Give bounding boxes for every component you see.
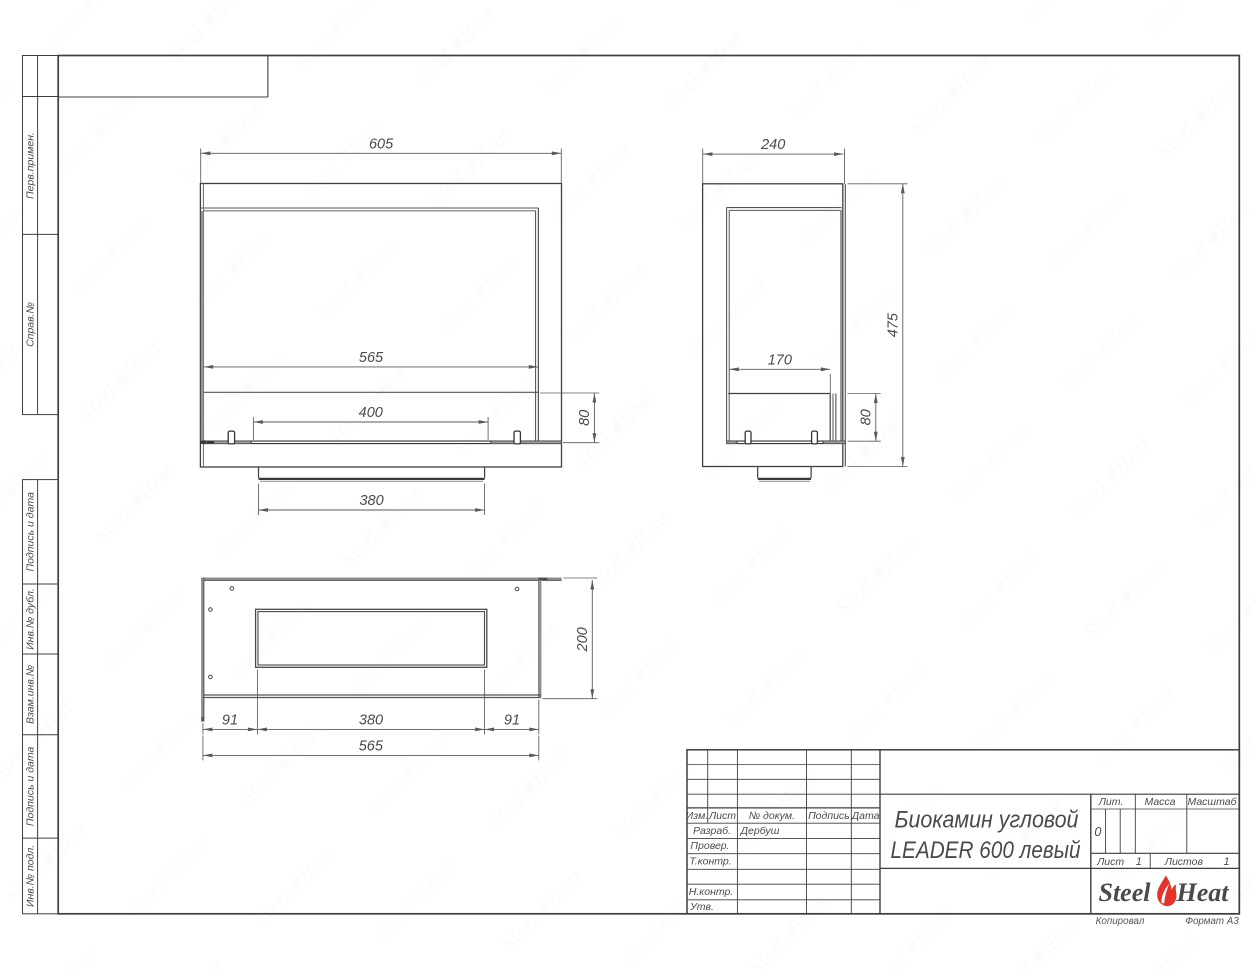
svg-text:Т.контр.: Т.контр.	[689, 855, 731, 867]
svg-text:0: 0	[1094, 825, 1101, 839]
svg-text:LEADER 600 левый: LEADER 600 левый	[891, 837, 1081, 864]
svg-text:1: 1	[1136, 856, 1142, 868]
svg-text:Взам.инв.№: Взам.инв.№	[25, 665, 37, 724]
svg-text:Инв.№ дубл.: Инв.№ дубл.	[25, 588, 37, 650]
svg-text:Биокамин угловой: Биокамин угловой	[895, 807, 1079, 834]
svg-text:605: 605	[369, 136, 394, 152]
svg-text:Лит.: Лит.	[1098, 796, 1124, 808]
svg-text:Лист: Лист	[708, 810, 736, 822]
svg-text:Дата: Дата	[851, 810, 880, 822]
svg-text:91: 91	[504, 712, 520, 728]
svg-text:Копировал: Копировал	[1096, 916, 1145, 927]
svg-text:Масштаб: Масштаб	[1187, 796, 1237, 808]
svg-text:565: 565	[359, 738, 384, 754]
svg-text:Дербуш: Дербуш	[740, 825, 780, 837]
svg-text:380: 380	[359, 493, 383, 509]
svg-text:400: 400	[359, 405, 383, 421]
svg-text:200: 200	[575, 627, 591, 652]
svg-text:1: 1	[1223, 856, 1229, 868]
svg-text:91: 91	[222, 712, 238, 728]
svg-text:Heat: Heat	[1176, 878, 1230, 907]
svg-text:Разраб.: Разраб.	[693, 825, 731, 837]
svg-text:Листов: Листов	[1164, 856, 1204, 868]
svg-text:Провер.: Провер.	[690, 840, 729, 852]
svg-text:№ докум.: № докум.	[749, 810, 795, 822]
svg-text:380: 380	[359, 712, 383, 728]
svg-text:80: 80	[858, 409, 874, 425]
svg-text:Масса: Масса	[1144, 796, 1175, 808]
svg-text:240: 240	[760, 137, 785, 153]
svg-text:Изм.: Изм.	[686, 810, 708, 822]
svg-text:Подпись: Подпись	[808, 810, 850, 822]
svg-text:80: 80	[577, 410, 593, 426]
svg-text:Инв.№ подл.: Инв.№ подл.	[25, 845, 37, 907]
svg-text:Утв.: Утв.	[689, 901, 714, 913]
svg-text:Steel: Steel	[1099, 878, 1152, 907]
svg-text:170: 170	[768, 352, 792, 368]
svg-text:Перв.примен.: Перв.примен.	[25, 132, 37, 199]
svg-text:Лист: Лист	[1096, 856, 1124, 868]
svg-text:Подпись и дата: Подпись и дата	[25, 747, 37, 827]
svg-text:565: 565	[359, 350, 384, 366]
svg-text:Н.контр.: Н.контр.	[689, 886, 733, 898]
svg-text:Справ.№: Справ.№	[25, 302, 37, 347]
svg-text:Подпись и дата: Подпись и дата	[25, 492, 37, 572]
svg-text:Формат A3: Формат A3	[1185, 916, 1239, 927]
svg-text:475: 475	[885, 312, 901, 337]
